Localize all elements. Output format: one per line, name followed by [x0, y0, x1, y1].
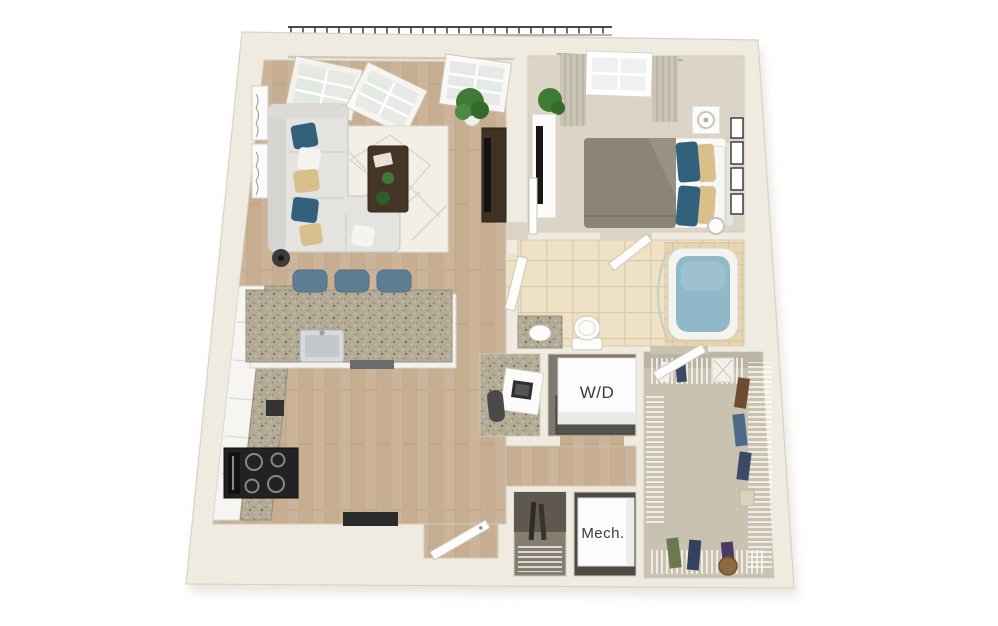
- coffee-table: [368, 146, 408, 212]
- stove: [224, 448, 298, 498]
- bathroom-vanity: [518, 316, 562, 348]
- tv-console-living: [482, 128, 506, 222]
- desk: [500, 368, 543, 415]
- dishwasher: [350, 360, 394, 369]
- mech-label: Mech.: [581, 525, 624, 542]
- bedroom-door: [529, 178, 537, 234]
- closet-shelving-left: [646, 396, 664, 526]
- bar-stools: [293, 270, 411, 292]
- floorplan-page: W/D Mech.: [0, 0, 998, 626]
- kitchen-island: [246, 290, 456, 369]
- floorplan-3d-render: W/D Mech.: [0, 0, 998, 626]
- entry-bench: [343, 512, 398, 526]
- laundry-closet: W/D: [556, 358, 636, 434]
- bed: [584, 138, 734, 228]
- bedroom-doorway: [506, 222, 528, 240]
- laundry-label: W/D: [580, 383, 615, 402]
- bathtub: [658, 248, 738, 340]
- laundry-closet-doorway: [560, 436, 624, 446]
- kitchen-sink: [300, 330, 344, 362]
- table-lamp-2: [708, 218, 724, 234]
- entry-hall-floor: [506, 446, 636, 486]
- mech-closet: Mech.: [578, 498, 634, 566]
- storage-basket: [719, 557, 737, 575]
- potted-plant-bedroom-leaf: [551, 101, 565, 115]
- floor-lamp: [272, 249, 290, 267]
- coffee-maker: [266, 400, 284, 416]
- closet-shelving-right: [748, 362, 772, 568]
- vanity-sink: [529, 325, 551, 341]
- coat-closet-wire-shelf: [518, 544, 562, 572]
- washer-dryer-cube: W/D: [558, 358, 636, 424]
- toilet: [572, 316, 602, 350]
- nightstand: [692, 106, 720, 134]
- tv-living: [484, 138, 491, 212]
- closet-shelving-bottom: [648, 550, 764, 574]
